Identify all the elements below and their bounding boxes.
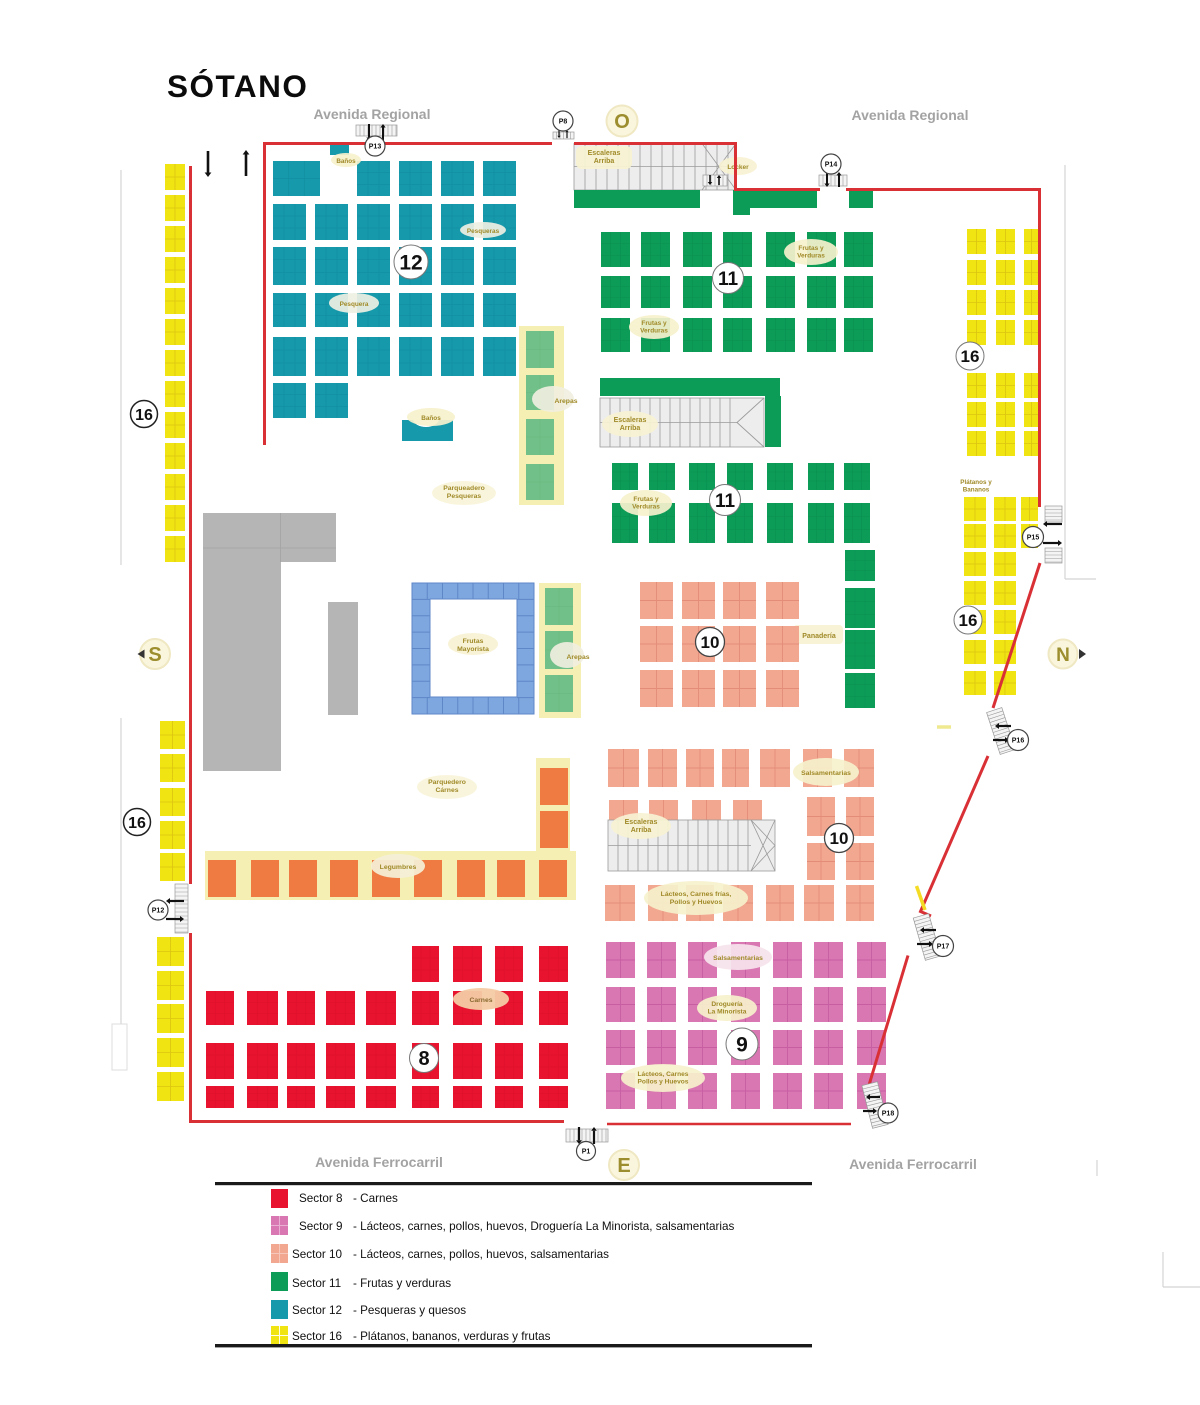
svg-text:P18: P18 (882, 1111, 895, 1118)
svg-text:Baños: Baños (421, 415, 441, 422)
svg-text:- Lácteos, carnes, pollos, hue: - Lácteos, carnes, pollos, huevos, salsa… (353, 1248, 609, 1261)
svg-text:P13: P13 (369, 144, 382, 151)
svg-text:- Pesqueras y quesos: - Pesqueras y quesos (353, 1304, 466, 1317)
svg-text:S: S (148, 644, 161, 666)
svg-text:11: 11 (718, 269, 739, 290)
svg-text:Avenida Ferrocarril: Avenida Ferrocarril (849, 1156, 977, 1172)
svg-text:Lácteos, CarnesPollos y Huevos: Lácteos, CarnesPollos y Huevos (638, 1071, 689, 1086)
svg-text:8: 8 (418, 1048, 429, 1070)
svg-text:P15: P15 (1027, 535, 1040, 542)
svg-text:ParqueaderoPesqueras: ParqueaderoPesqueras (443, 485, 485, 500)
svg-text:Sector 12: Sector 12 (292, 1304, 342, 1317)
svg-text:Avenida Regional: Avenida Regional (852, 107, 969, 123)
svg-text:P8: P8 (559, 119, 568, 126)
svg-text:Frutas yVerduras: Frutas yVerduras (797, 245, 825, 260)
svg-text:- Plátanos, bananos, verduras: - Plátanos, bananos, verduras y frutas (353, 1330, 551, 1343)
svg-text:P14: P14 (825, 162, 838, 169)
svg-text:Avenida Regional: Avenida Regional (314, 106, 431, 122)
svg-text:P16: P16 (1012, 738, 1025, 745)
svg-text:Salsamentarias: Salsamentarias (713, 955, 763, 962)
svg-text:Pesqueras: Pesqueras (467, 228, 500, 235)
svg-text:P12: P12 (152, 908, 165, 915)
svg-text:Frutas yVerduras: Frutas yVerduras (640, 320, 668, 335)
svg-text:SÓTANO: SÓTANO (167, 68, 308, 104)
svg-text:DrogueríaLa Minorista: DrogueríaLa Minorista (708, 1001, 747, 1016)
svg-text:Sector 9: Sector 9 (299, 1220, 343, 1233)
svg-text:16: 16 (961, 347, 980, 366)
svg-text:Lácteos, Carnes frías,Pollos y: Lácteos, Carnes frías,Pollos y Huevos (661, 891, 732, 906)
svg-text:- Frutas y verduras: - Frutas y verduras (353, 1277, 451, 1290)
svg-text:Carnes: Carnes (469, 997, 492, 1004)
svg-text:Frutas yVerduras: Frutas yVerduras (632, 496, 660, 511)
svg-text:16: 16 (959, 611, 978, 630)
svg-text:Sector 8: Sector 8 (299, 1192, 343, 1205)
svg-text:Sector 16: Sector 16 (292, 1330, 342, 1343)
svg-text:16: 16 (128, 815, 146, 832)
svg-text:Sector 11: Sector 11 (292, 1277, 341, 1290)
svg-text:Arepas: Arepas (554, 398, 577, 405)
svg-text:Locker: Locker (727, 164, 749, 171)
svg-text:10: 10 (701, 633, 720, 652)
svg-text:P17: P17 (937, 944, 950, 951)
svg-text:Avenida Ferrocarril: Avenida Ferrocarril (315, 1154, 443, 1170)
svg-text:Panadería: Panadería (802, 633, 836, 640)
svg-text:Baños: Baños (336, 158, 356, 165)
svg-text:Arepas: Arepas (566, 654, 589, 661)
svg-text:10: 10 (830, 829, 849, 848)
svg-text:N: N (1056, 645, 1070, 666)
svg-text:P1: P1 (582, 1149, 591, 1156)
svg-text:- Carnes: - Carnes (353, 1192, 398, 1205)
svg-text:12: 12 (399, 252, 422, 275)
svg-text:Legumbres: Legumbres (380, 864, 417, 871)
svg-text:16: 16 (135, 407, 153, 424)
svg-text:11: 11 (715, 491, 736, 512)
svg-text:Salsamentarias: Salsamentarias (801, 770, 851, 777)
svg-text:- Lácteos, carnes, pollos, hue: - Lácteos, carnes, pollos, huevos, Drogu… (353, 1220, 734, 1233)
svg-text:Pesquera: Pesquera (340, 301, 369, 308)
svg-text:9: 9 (736, 1034, 748, 1057)
svg-text:Sector 10: Sector 10 (292, 1248, 343, 1261)
svg-text:E: E (617, 1155, 630, 1177)
svg-text:O: O (614, 111, 630, 133)
svg-text:Plátanos yBananos: Plátanos yBananos (960, 479, 992, 493)
